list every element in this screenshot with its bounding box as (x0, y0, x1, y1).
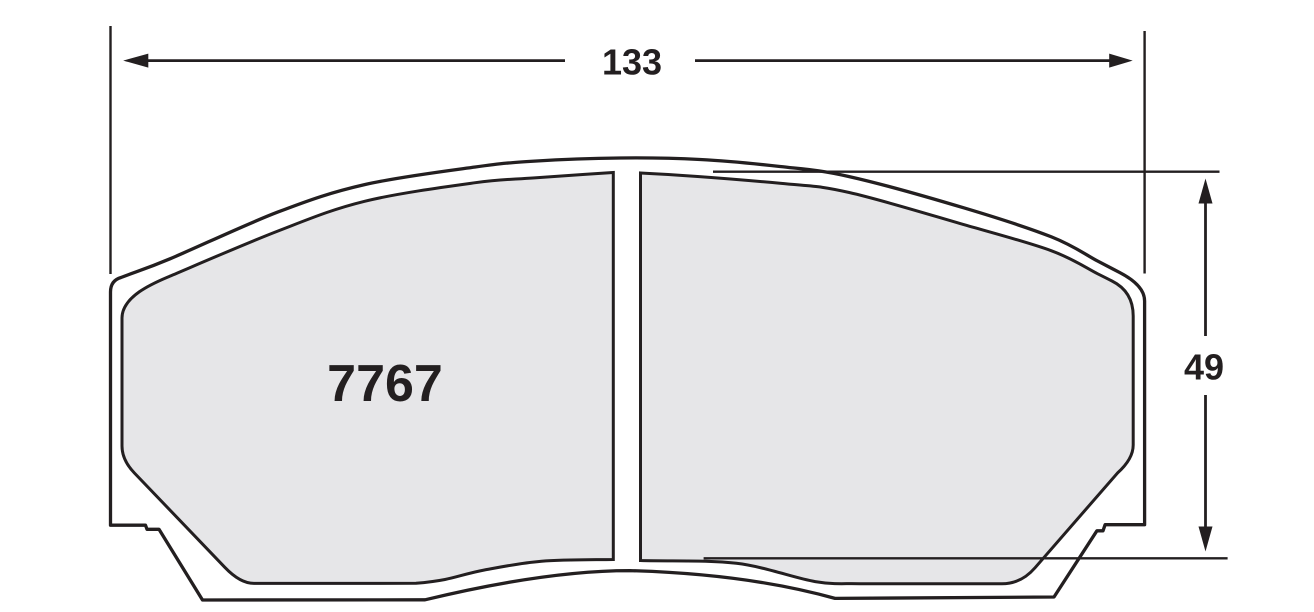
svg-text:7767: 7767 (327, 355, 443, 413)
svg-text:133: 133 (602, 41, 662, 82)
svg-text:49: 49 (1184, 346, 1224, 387)
